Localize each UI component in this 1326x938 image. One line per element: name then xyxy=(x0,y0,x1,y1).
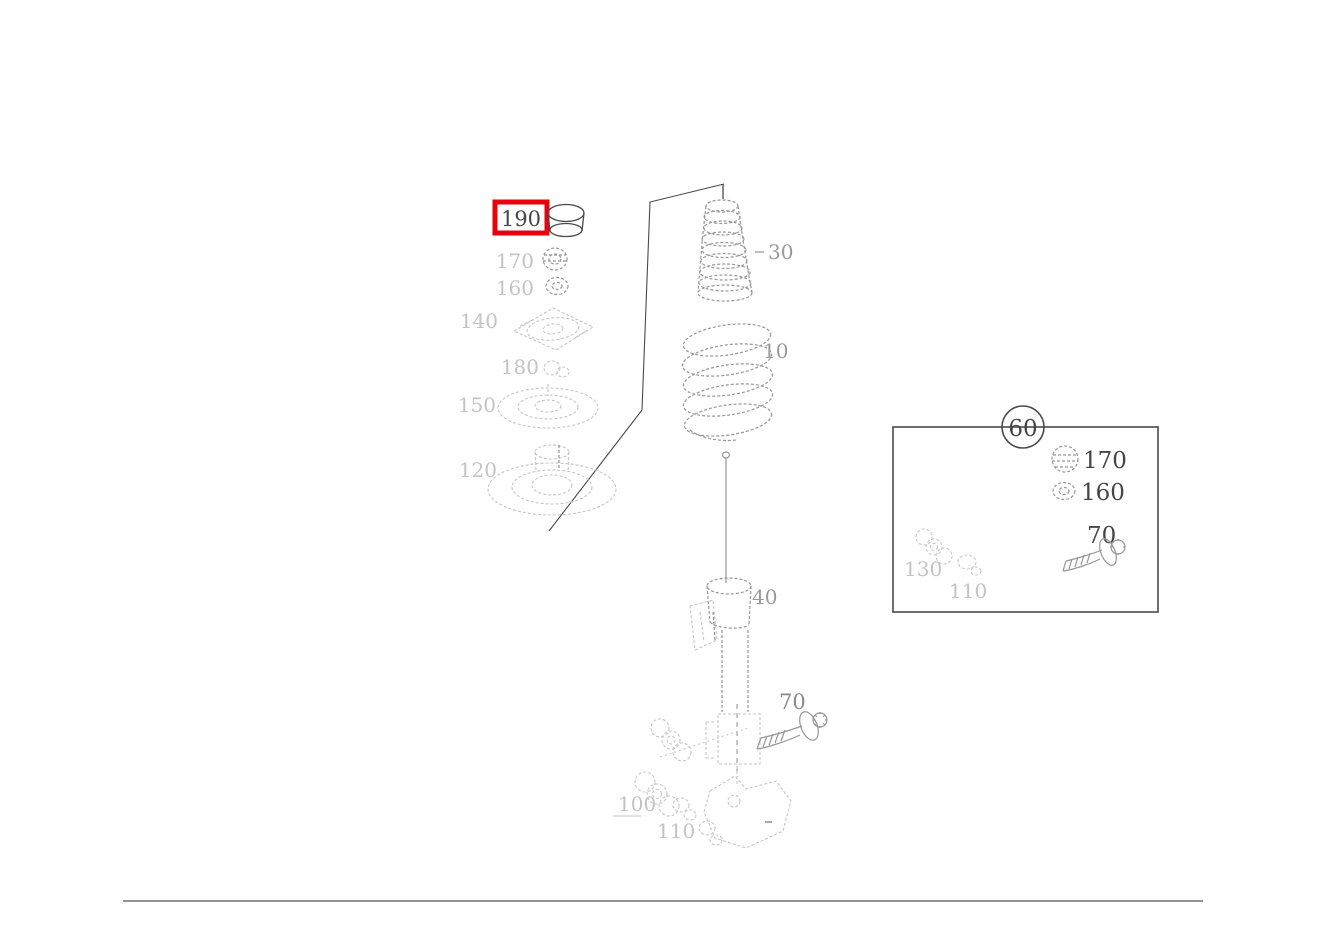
knuckle-icon xyxy=(704,766,791,848)
parts-diagram-screen: 190 170 160 140 180 150 120 xyxy=(0,0,1326,938)
group-leader-line xyxy=(549,184,724,531)
spring-seat-icon xyxy=(488,445,616,515)
kit-inset-box: 60 170 160 70 130 110 xyxy=(893,406,1158,612)
spring-seat-icon xyxy=(498,384,598,428)
ring-icon xyxy=(544,361,569,377)
nut-stack-icon xyxy=(651,719,691,761)
inset-label-170[interactable]: 170 xyxy=(1083,448,1127,474)
part-label-160[interactable]: 160 xyxy=(496,276,534,300)
washer-icon xyxy=(699,821,722,845)
kit-label-60[interactable]: 60 xyxy=(1008,416,1037,442)
nut-icon xyxy=(1052,446,1078,472)
coil-spring-icon xyxy=(680,319,774,441)
part-label-140[interactable]: 140 xyxy=(460,309,498,333)
washer-icon xyxy=(546,278,568,295)
bolt-icon xyxy=(757,709,827,749)
shock-absorber-icon xyxy=(707,452,751,712)
part-label-180[interactable]: 180 xyxy=(501,355,539,379)
part-label-30[interactable]: 30 xyxy=(768,240,793,264)
bracket-icon xyxy=(690,600,717,650)
inset-label-160[interactable]: 160 xyxy=(1081,480,1125,506)
part-label-70[interactable]: 70 xyxy=(779,690,806,714)
mount-icon xyxy=(514,308,593,350)
part-label-120[interactable]: 120 xyxy=(459,458,497,482)
part-label-170[interactable]: 170 xyxy=(496,249,534,273)
washer-icon xyxy=(958,555,981,575)
part-label-150[interactable]: 150 xyxy=(458,393,496,417)
part-label-100[interactable]: 100 xyxy=(618,792,656,816)
part-label-10[interactable]: 10 xyxy=(763,339,788,363)
part-label-40[interactable]: 40 xyxy=(752,585,777,609)
washer-icon xyxy=(1053,483,1075,500)
nut-icon xyxy=(543,248,567,270)
inset-label-130[interactable]: 130 xyxy=(904,557,942,581)
part-label-110[interactable]: 110 xyxy=(657,819,695,843)
inset-label-110[interactable]: 110 xyxy=(949,579,987,603)
part-label-190[interactable]: 190 xyxy=(501,207,541,231)
cap-icon xyxy=(548,205,584,237)
selected-part-highlight[interactable]: 190 xyxy=(495,202,547,233)
parts-diagram-canvas: 190 170 160 140 180 150 120 xyxy=(0,0,1326,938)
bump-stop-icon xyxy=(698,200,752,301)
